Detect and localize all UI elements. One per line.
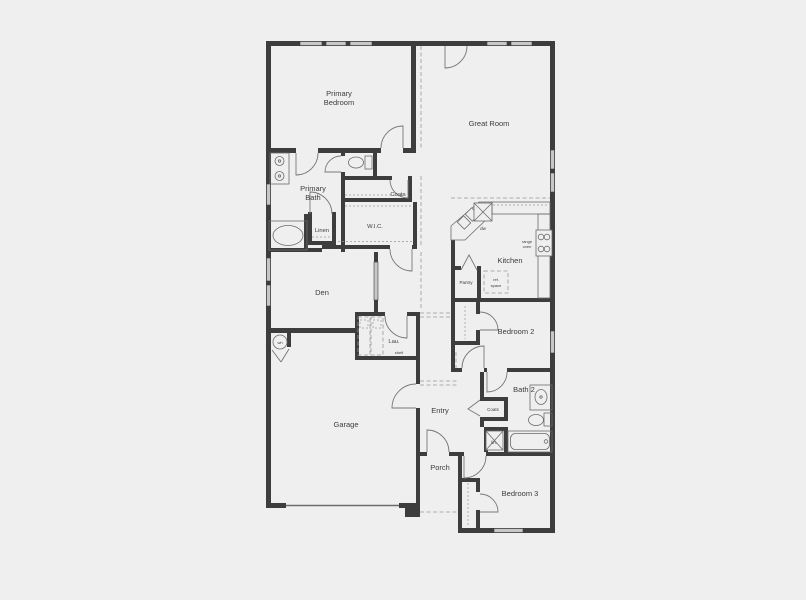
wall-segment bbox=[341, 198, 412, 202]
window bbox=[300, 42, 322, 46]
wall-segment bbox=[266, 333, 271, 508]
floor-plan-drawing: Primary Bedroom Great Room Primary Bath … bbox=[0, 0, 806, 600]
appliance-mark bbox=[373, 320, 381, 328]
tub-drain bbox=[544, 440, 548, 444]
door-bedroom2 bbox=[462, 346, 484, 368]
window bbox=[350, 42, 372, 46]
wall-segment bbox=[322, 245, 390, 249]
laundry-fixtures bbox=[358, 317, 383, 355]
wall-segment bbox=[476, 510, 480, 528]
wall-segment bbox=[451, 266, 461, 270]
sink-basin bbox=[275, 172, 284, 181]
toilet-bowl bbox=[349, 157, 364, 168]
label-linen2: lin. bbox=[491, 440, 497, 445]
wall-segment bbox=[287, 333, 291, 347]
label-shelf: shelf bbox=[395, 350, 404, 355]
label-bedroom3: Bedroom 3 bbox=[502, 489, 539, 498]
label-coats-lower: Coats bbox=[487, 407, 500, 412]
wall-segment bbox=[480, 372, 484, 397]
doors bbox=[296, 46, 507, 512]
wall-segment bbox=[355, 356, 420, 360]
door-water-closet bbox=[325, 156, 341, 172]
wall-segment bbox=[451, 298, 555, 302]
wall-segment bbox=[451, 368, 462, 372]
label-entry: Entry bbox=[431, 406, 449, 415]
wall-segment bbox=[403, 148, 416, 153]
door-bedroom3-closet bbox=[480, 494, 498, 512]
sink-basin bbox=[275, 157, 284, 166]
sink-drain bbox=[540, 396, 542, 398]
wall-segment bbox=[373, 176, 392, 180]
door-primary-bedroom bbox=[381, 126, 403, 148]
label-porch: Porch bbox=[430, 463, 450, 472]
wall-segment bbox=[345, 176, 373, 180]
outer-walls bbox=[266, 41, 555, 533]
label-primary-bath-line2: Bath bbox=[305, 193, 320, 202]
sink-drain bbox=[278, 175, 280, 177]
door-primary-bath bbox=[296, 153, 318, 175]
window bbox=[326, 42, 346, 46]
wall-segment bbox=[476, 302, 480, 314]
door-coats-lower bbox=[468, 400, 480, 416]
wall-segment bbox=[412, 245, 417, 249]
wall-segment bbox=[476, 478, 480, 492]
door-bedroom2-closet bbox=[480, 312, 498, 330]
label-bath2: Bath 2 bbox=[513, 385, 535, 394]
window bbox=[551, 173, 555, 192]
wall-segment bbox=[318, 148, 381, 153]
label-primary-bedroom-line2: Bedroom bbox=[324, 98, 354, 107]
wall-segment bbox=[308, 212, 312, 245]
label-bedroom2: Bedroom 2 bbox=[498, 327, 535, 336]
wall-segment bbox=[266, 328, 359, 333]
wall-segment bbox=[341, 172, 345, 252]
door-great-room-rear bbox=[445, 46, 467, 68]
wall-segment bbox=[507, 368, 555, 372]
wall-segment bbox=[480, 397, 508, 401]
wall-segment bbox=[480, 421, 484, 427]
label-laundry: Lau. bbox=[388, 339, 400, 345]
window bbox=[267, 258, 271, 281]
water-heater-nook bbox=[272, 350, 281, 362]
range-oven bbox=[536, 230, 552, 256]
wall-segment bbox=[550, 41, 555, 533]
toilet-tank bbox=[365, 156, 372, 169]
window bbox=[267, 184, 271, 205]
door-bedroom3 bbox=[464, 456, 486, 478]
bathtub bbox=[273, 226, 303, 246]
door-wic bbox=[390, 249, 412, 271]
window bbox=[267, 285, 271, 306]
wall-segment bbox=[355, 312, 385, 316]
bathtub bbox=[511, 434, 550, 450]
label-water-heater: wh bbox=[277, 340, 282, 345]
wall-segment bbox=[266, 503, 286, 508]
window bbox=[551, 331, 555, 353]
label-kitchen: Kitchen bbox=[497, 256, 522, 265]
wall-segment bbox=[308, 241, 336, 245]
door-pantry bbox=[461, 255, 477, 270]
wall-segment bbox=[373, 148, 377, 180]
wall-segment bbox=[416, 408, 420, 514]
label-range-line2: oven bbox=[523, 244, 532, 249]
wall-segment bbox=[477, 266, 481, 302]
window bbox=[487, 42, 507, 46]
label-den: Den bbox=[315, 288, 329, 297]
wall-segment bbox=[484, 368, 487, 372]
label-ref-line2: space bbox=[491, 283, 502, 288]
wall-segment bbox=[455, 341, 480, 345]
north-counter bbox=[492, 202, 550, 214]
door-front-entry bbox=[427, 430, 449, 452]
wall-segment bbox=[332, 212, 336, 245]
sink-drain bbox=[278, 160, 280, 162]
windows bbox=[267, 42, 555, 533]
sink-basin bbox=[535, 390, 547, 405]
wall-segment bbox=[413, 202, 417, 249]
bathtub-surround bbox=[508, 431, 552, 452]
wall-segment bbox=[458, 452, 462, 533]
window bbox=[551, 150, 555, 169]
label-primary-bedroom-line1: Primary bbox=[326, 89, 352, 98]
door-garage-entry bbox=[392, 384, 416, 408]
cased-opening bbox=[374, 262, 378, 300]
wall-segment bbox=[480, 417, 508, 421]
label-coats-upper: Coats bbox=[390, 192, 405, 198]
window bbox=[511, 42, 532, 46]
refrigerator-space bbox=[484, 271, 508, 293]
label-dishwasher: dw bbox=[480, 226, 487, 231]
label-pantry: Pantry bbox=[459, 280, 473, 285]
wall-segment bbox=[416, 312, 420, 384]
door-laundry bbox=[385, 316, 407, 338]
wall-segment bbox=[411, 41, 416, 151]
toilet-bowl bbox=[529, 415, 544, 426]
wall-segment bbox=[341, 148, 345, 156]
wall-segment bbox=[504, 397, 508, 421]
double-vanity bbox=[270, 153, 289, 184]
wall-segment bbox=[486, 452, 555, 456]
label-great-room: Great Room bbox=[469, 119, 510, 128]
appliance-mark bbox=[360, 320, 368, 328]
wall-segment bbox=[416, 452, 427, 456]
label-garage: Garage bbox=[333, 420, 358, 429]
label-primary-bath-line1: Primary bbox=[300, 184, 326, 193]
wall-segment bbox=[266, 148, 296, 153]
door-bath2 bbox=[487, 372, 507, 392]
floor-plan-canvas: Primary Bedroom Great Room Primary Bath … bbox=[0, 0, 806, 600]
wall-segment bbox=[504, 427, 508, 452]
wall-segment bbox=[451, 240, 455, 372]
label-ref-line1: ref. bbox=[493, 277, 499, 282]
window bbox=[494, 529, 523, 533]
interior-walls bbox=[266, 41, 555, 533]
water-heater-nook bbox=[281, 349, 289, 362]
label-linen: Linen bbox=[315, 228, 329, 234]
label-wic: W.I.C. bbox=[367, 224, 383, 230]
